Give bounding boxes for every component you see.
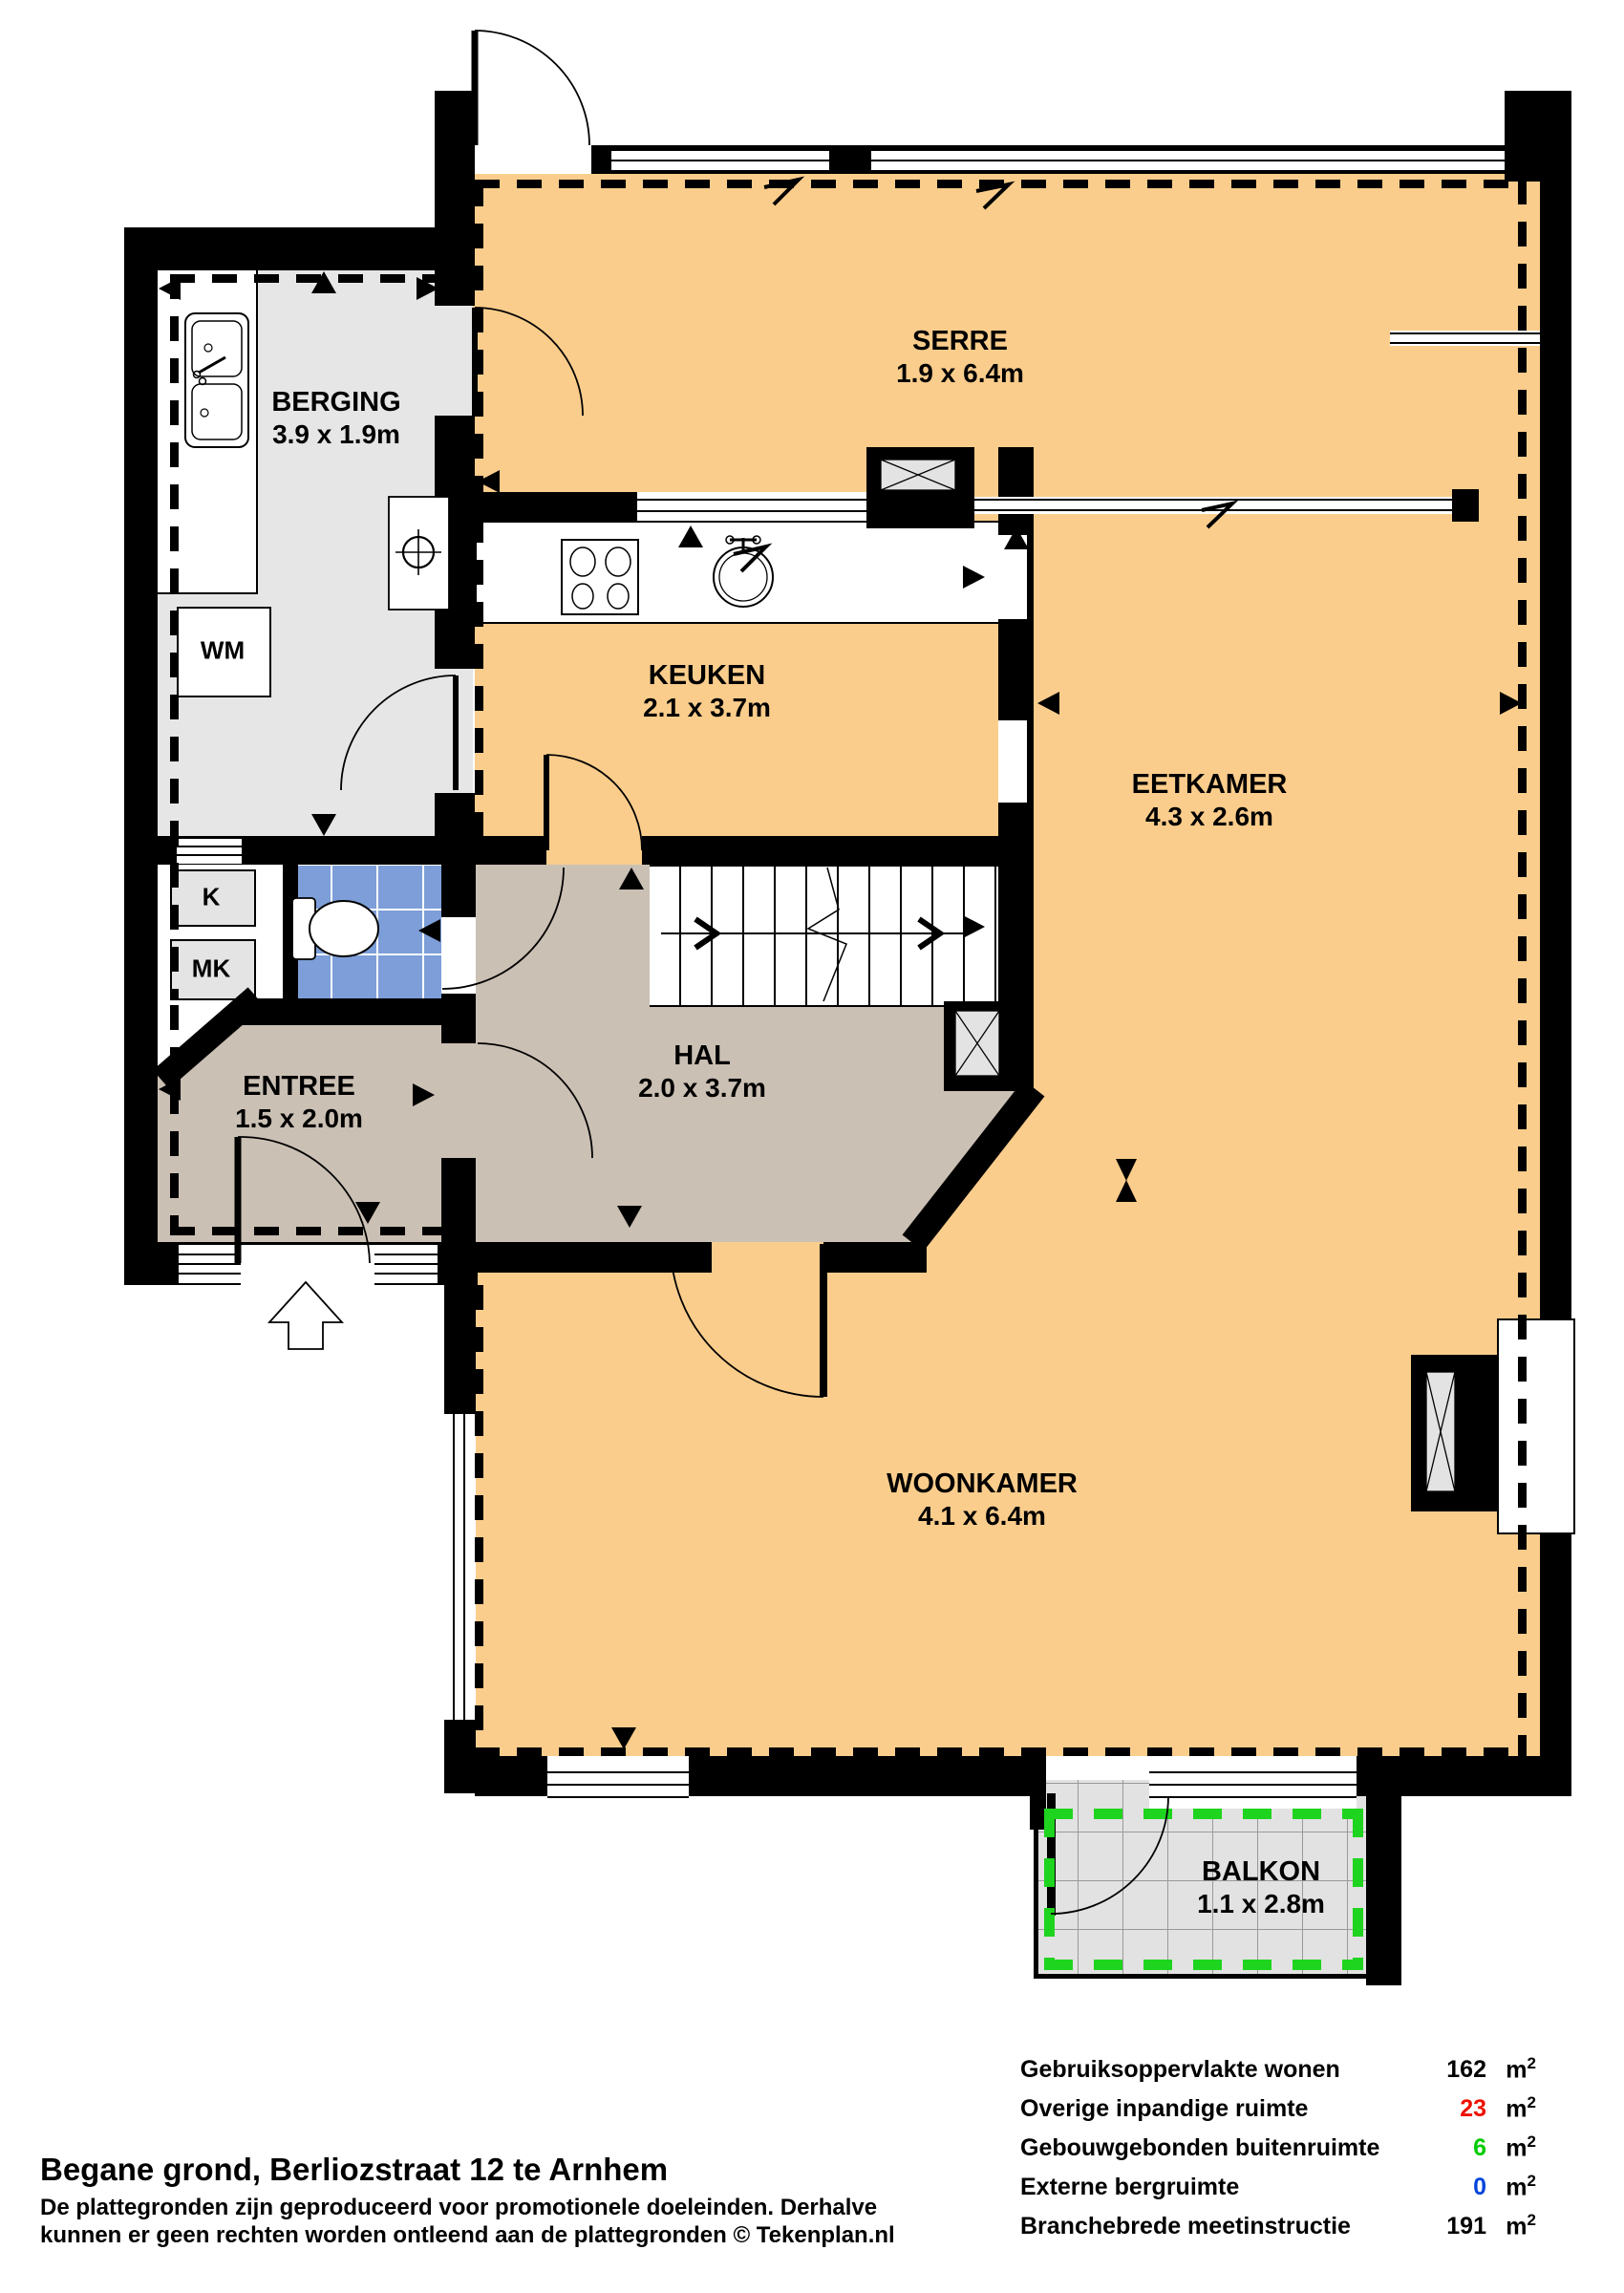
label-eetkamer: EETKAMER 4.3 x 2.6m: [1132, 768, 1288, 833]
window: [637, 492, 866, 521]
label-k: K: [203, 883, 221, 912]
room-dims: 3.9 x 1.9m: [271, 418, 400, 451]
label-berging: BERGING 3.9 x 1.9m: [271, 386, 400, 451]
wall: [475, 1756, 547, 1796]
balkon-outline: [1044, 1809, 1363, 1819]
opening-marker: [418, 919, 440, 942]
room-name: BERGING: [271, 386, 400, 418]
opening-marker: [678, 525, 703, 547]
window: [974, 497, 1452, 514]
opening-marker: [311, 271, 336, 293]
measure-line: [170, 274, 179, 998]
opening-marker: [963, 915, 985, 938]
wall: [823, 1242, 927, 1273]
room-dims: 1.9 x 6.4m: [896, 357, 1024, 390]
window: [871, 151, 1505, 170]
legend-unit: m2: [1486, 2172, 1536, 2201]
legend-value-2: 6: [1416, 2134, 1486, 2162]
wall: [441, 865, 476, 917]
plan-title: Begane grond, Berliozstraat 12 te Arnhem: [40, 2152, 668, 2188]
wall: [1540, 182, 1571, 1796]
measure-line: [475, 182, 483, 865]
legend-value-1: 23: [1416, 2095, 1486, 2123]
legend-row: Gebruiksoppervlakte wonen 162 m2: [1020, 2054, 1536, 2093]
legend-label: Gebouwgebonden buitenruimte: [1020, 2134, 1416, 2162]
wall: [866, 447, 974, 528]
wall-recess: [998, 718, 1029, 804]
opening-marker: [963, 566, 985, 589]
opening-marker: [413, 1083, 435, 1106]
legend-unit: m2: [1486, 2093, 1536, 2123]
measure-point-marker: [1116, 1159, 1137, 1181]
wall: [475, 492, 637, 521]
kitchen-counter: [475, 521, 1000, 624]
wall: [1366, 1780, 1401, 1985]
opening-marker: [478, 470, 500, 493]
opening-marker: [311, 814, 336, 836]
wall: [435, 174, 475, 306]
wall: [475, 1242, 712, 1273]
legend-row: Overige inpandige ruimte 23 m2: [1020, 2093, 1536, 2132]
wall: [239, 998, 441, 1025]
room-dims: 1.1 x 2.8m: [1197, 1888, 1325, 1920]
room-name: HAL: [638, 1039, 766, 1072]
floorplan-canvas: SERRE 1.9 x 6.4m BERGING 3.9 x 1.9m KEUK…: [0, 0, 1624, 2293]
staircase: [650, 865, 998, 1007]
legend-unit: m2: [1486, 2211, 1536, 2240]
opening-marker: [1500, 692, 1522, 715]
room-dims: 4.3 x 2.6m: [1132, 801, 1288, 833]
wall: [1411, 1355, 1497, 1511]
room-name: WOONKAMER: [887, 1468, 1078, 1500]
entrance-arrow-icon: [269, 1282, 342, 1349]
wall: [1505, 91, 1571, 182]
label-wm: WM: [201, 636, 245, 666]
legend-value-3: 0: [1416, 2174, 1486, 2201]
label-serre: SERRE 1.9 x 6.4m: [896, 325, 1024, 390]
opening-marker: [355, 1202, 380, 1224]
room-name: KEUKEN: [643, 659, 771, 692]
measure-line: [475, 180, 1518, 188]
wall: [441, 994, 476, 1043]
measure-point-marker: [1116, 1180, 1137, 1202]
wall: [435, 91, 475, 174]
room-name: BALKON: [1197, 1855, 1325, 1888]
balkon-edge: [1034, 1974, 1401, 1979]
door-opening: [475, 145, 591, 174]
label-hal: HAL 2.0 x 3.7m: [638, 1039, 766, 1104]
room-dims: 2.1 x 3.7m: [643, 692, 771, 724]
legend-row: Gebouwgebonden buitenruimte 6 m2: [1020, 2132, 1536, 2172]
label-keuken: KEUKEN 2.1 x 3.7m: [643, 659, 771, 724]
wall: [283, 865, 298, 998]
legend-unit: m2: [1486, 2054, 1536, 2084]
room-dims: 2.0 x 3.7m: [638, 1072, 766, 1104]
wall: [944, 1001, 1034, 1091]
opening-marker: [352, 1001, 376, 1023]
disclaimer-line: kunnen er geen rechten worden ontleend a…: [40, 2221, 895, 2249]
wall: [124, 227, 449, 270]
balkon-outline: [1044, 1809, 1055, 1970]
wall: [689, 1756, 1046, 1796]
measure-line: [170, 1227, 475, 1235]
wall: [435, 416, 475, 669]
measure-line: [1518, 180, 1527, 1756]
opening-marker: [617, 1206, 642, 1228]
disclaimer-line: De plattegronden zijn geproduceerd voor …: [40, 2194, 895, 2221]
legend-label: Branchebrede meetinstructie: [1020, 2213, 1416, 2240]
label-woonkamer: WOONKAMER 4.1 x 6.4m: [887, 1468, 1078, 1532]
opening-marker: [611, 1727, 636, 1749]
surface-legend: Gebruiksoppervlakte wonen 162 m2 Overige…: [1020, 2054, 1536, 2250]
legend-row: Branchebrede meetinstructie 191 m2: [1020, 2211, 1536, 2250]
opening-marker: [1004, 527, 1029, 549]
label-balkon: BALKON 1.1 x 2.8m: [1197, 1855, 1325, 1920]
room-dims: 1.5 x 2.0m: [235, 1103, 363, 1135]
room-name: EETKAMER: [1132, 768, 1288, 801]
measure-line: [170, 274, 435, 283]
window: [177, 839, 242, 864]
window: [374, 1245, 438, 1283]
room-name: SERRE: [896, 325, 1024, 357]
room-name: ENTREE: [235, 1070, 363, 1103]
room-dims: 4.1 x 6.4m: [887, 1500, 1078, 1532]
label-mk: MK: [192, 954, 230, 984]
opening-marker: [417, 277, 438, 300]
disclaimer: De plattegronden zijn geproduceerd voor …: [40, 2194, 895, 2249]
window: [1149, 1761, 1357, 1809]
legend-row: Externe bergruimte 0 m2: [1020, 2172, 1536, 2211]
wall: [475, 836, 546, 865]
opening-marker: [619, 868, 644, 889]
window: [444, 1414, 476, 1720]
legend-label: Overige inpandige ruimte: [1020, 2095, 1416, 2123]
opening-marker: [1037, 692, 1059, 715]
balkon-outline: [1353, 1809, 1363, 1970]
legend-unit: m2: [1486, 2132, 1536, 2162]
wall: [124, 227, 158, 1285]
legend-label: Externe bergruimte: [1020, 2174, 1416, 2201]
window: [611, 151, 829, 170]
window: [179, 1245, 241, 1283]
label-entree: ENTREE 1.5 x 2.0m: [235, 1070, 363, 1135]
wall: [642, 836, 998, 865]
balkon-outline: [1044, 1960, 1363, 1970]
legend-value-0: 162: [1416, 2056, 1486, 2084]
opening-marker: [159, 277, 181, 300]
measure-line: [170, 1005, 179, 1234]
front-door-opening: [241, 1245, 374, 1285]
wall: [1452, 489, 1479, 522]
wall-niche: [1497, 1318, 1575, 1534]
legend-value-4: 191: [1416, 2213, 1486, 2240]
toilet-door-opening: [441, 917, 476, 994]
balkon-edge: [1034, 1780, 1038, 1978]
opening-marker: [159, 1078, 181, 1101]
legend-label: Gebruiksoppervlakte wonen: [1020, 2056, 1416, 2084]
measure-line: [475, 1285, 483, 1747]
window: [547, 1760, 689, 1810]
